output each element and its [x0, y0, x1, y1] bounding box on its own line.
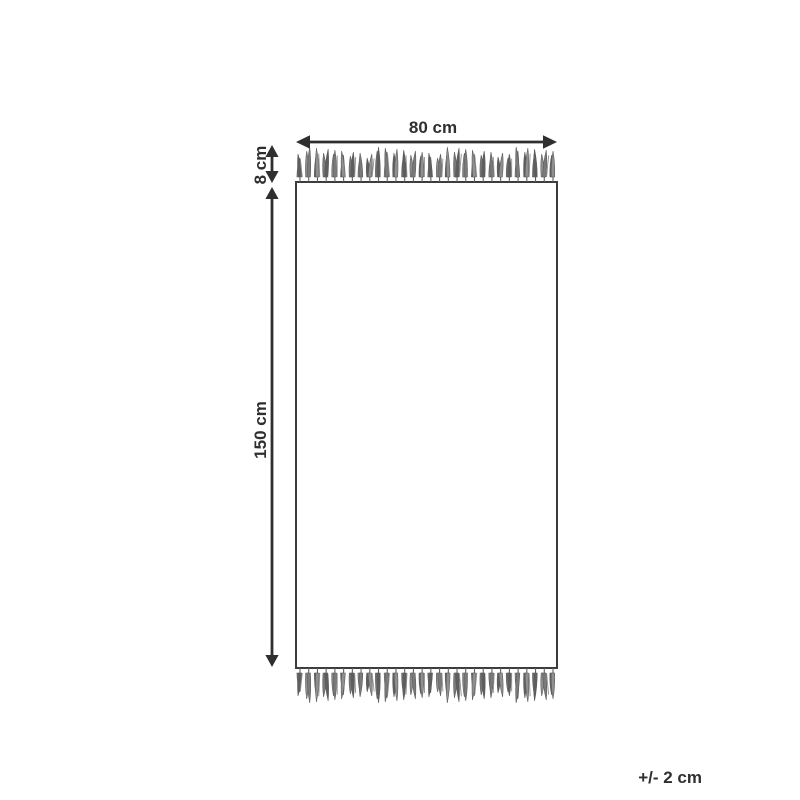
- diagram-canvas: 80 cm 8 cm 150 cm +/- 2 cm: [0, 0, 800, 800]
- rug-outline: [296, 182, 557, 668]
- bottom-fringe: [297, 668, 555, 703]
- width-arrow: [296, 135, 557, 149]
- tolerance-label: +/- 2 cm: [638, 768, 702, 787]
- width-label: 80 cm: [409, 118, 457, 137]
- top-fringe: [297, 147, 555, 182]
- length-label: 150 cm: [251, 401, 270, 459]
- rug-dimension-diagram: 80 cm 8 cm 150 cm +/- 2 cm: [0, 0, 800, 800]
- fringe-height-label: 8 cm: [251, 146, 270, 185]
